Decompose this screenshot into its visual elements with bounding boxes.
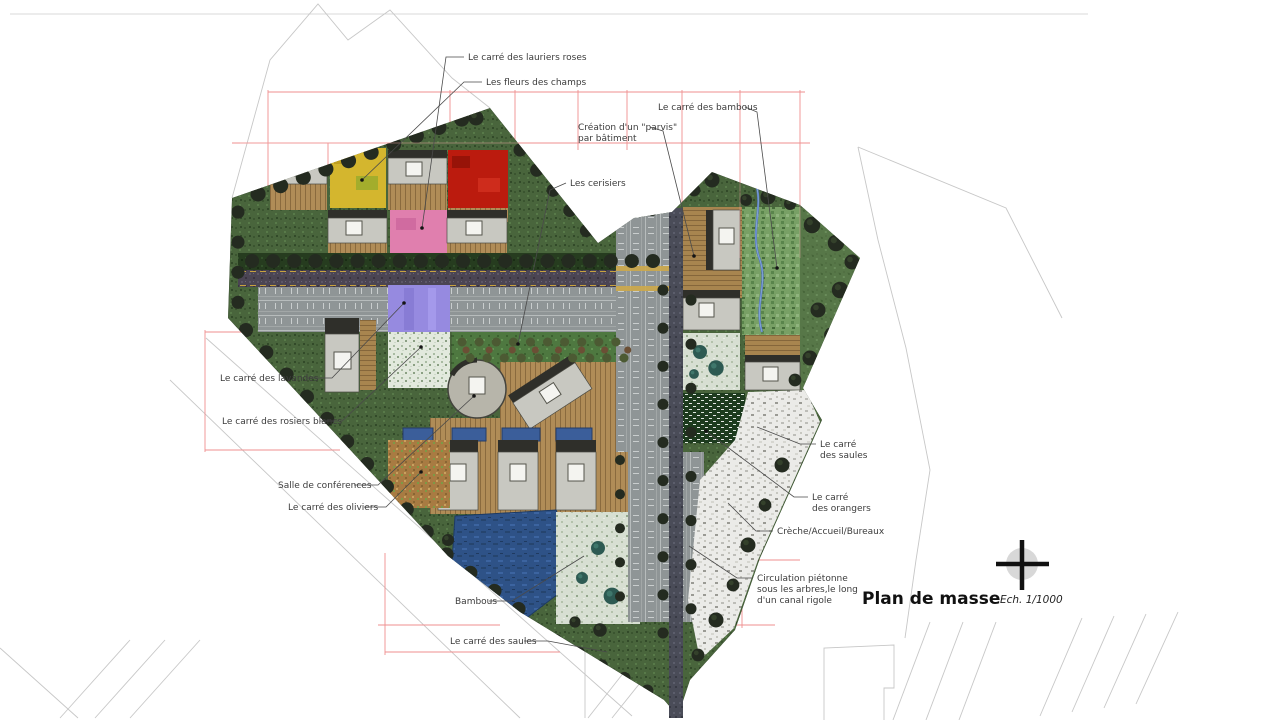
jardin-mineral-sud	[556, 512, 640, 624]
label-creche: Crèche/Accueil/Bureaux	[777, 526, 885, 537]
label-bambous-sud: Bambous	[455, 597, 497, 607]
label-lauriers-roses: Le carré des lauriers roses	[468, 52, 587, 63]
label-bambous-nord: Le carré des bambous	[658, 102, 758, 113]
site-plan-page: Le carré des lauriers roses Les fleurs d…	[0, 0, 1280, 720]
label-saules-est-1: Le carré	[820, 439, 857, 450]
page-title: Plan de masse	[862, 589, 1000, 609]
label-lavandes: Le carré des lavandes	[220, 373, 319, 384]
square-rosiers-blancs	[388, 332, 450, 388]
access-road	[238, 270, 672, 287]
label-oliviers: Le carré des oliviers	[288, 502, 379, 513]
label-parvis-1: Création d'un "parvis"	[578, 122, 677, 133]
site-artwork	[228, 101, 865, 717]
label-orangers-1: Le carré	[812, 492, 849, 503]
label-parvis-2: par bâtiment	[578, 134, 637, 144]
label-saules-est-2: des saules	[820, 451, 868, 461]
label-circulation-2: sous les arbres,le long	[757, 585, 858, 595]
hedge-strip	[238, 253, 662, 270]
label-circulation-1: Circulation piétonne	[757, 573, 848, 584]
title-block: Plan de masse Ech. 1/1000	[862, 540, 1063, 609]
label-saules-sud: Le carré des saules	[450, 636, 537, 647]
north-indicator-icon	[996, 540, 1049, 590]
label-rosiers-blancs: Le carré des rosiers blancs	[222, 416, 342, 427]
batiments-sud	[438, 440, 596, 510]
canal-pieton	[669, 208, 683, 713]
plan-de-masse-drawing: Le carré des lauriers roses Les fleurs d…	[0, 0, 1280, 720]
scale-label: Ech. 1/1000	[1000, 594, 1063, 606]
label-circulation-3: d'un canal rigole	[757, 596, 832, 606]
canal-tail	[669, 684, 683, 718]
square-bambous	[742, 207, 800, 335]
label-cerisiers: Les cerisiers	[570, 179, 626, 189]
square-lauriers-roses	[390, 210, 447, 258]
parking-north	[258, 287, 662, 332]
square-lavandes	[388, 285, 450, 332]
label-salle-conferences: Salle de conférences	[278, 480, 372, 491]
label-orangers-2: des orangers	[812, 504, 871, 514]
label-fleurs-des-champs: Les fleurs des champs	[486, 78, 587, 88]
